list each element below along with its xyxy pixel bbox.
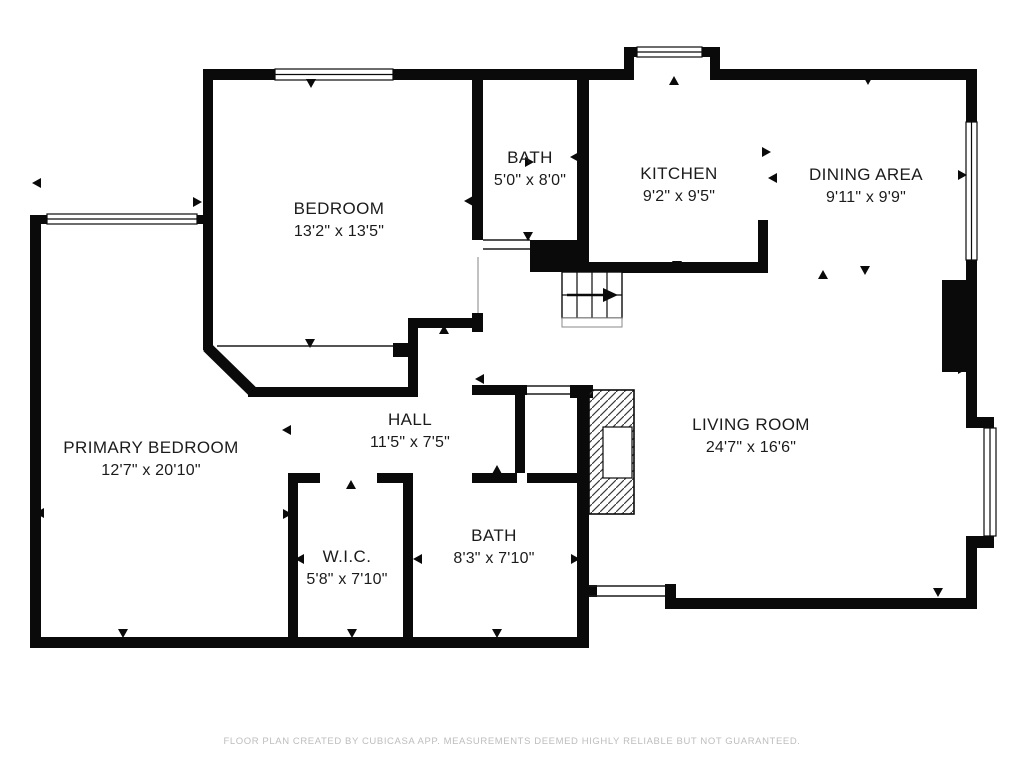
room-dimensions: 5'0" x 8'0" — [494, 172, 566, 189]
room-label-living-room: LIVING ROOM24'7" x 16'6" — [692, 415, 810, 456]
room-dimensions: 5'8" x 7'10" — [306, 571, 387, 588]
door-marker-icon — [306, 79, 316, 88]
door-marker-icon — [818, 270, 828, 279]
room-name: PRIMARY BEDROOM — [63, 438, 238, 457]
door-marker-icon — [346, 480, 356, 489]
room-dimensions: 24'7" x 16'6" — [706, 439, 796, 456]
room-name: LIVING ROOM — [692, 415, 810, 434]
door-marker-icon — [32, 178, 41, 188]
room-name: KITCHEN — [640, 164, 717, 183]
window-primary-top — [47, 214, 197, 224]
door-marker-icon — [492, 465, 502, 474]
room-dimensions: 13'2" x 13'5" — [294, 223, 384, 240]
door-marker-icon — [464, 196, 473, 206]
door-marker-icon — [347, 629, 357, 638]
room-dimensions: 11'5" x 7'5" — [370, 434, 450, 451]
stairwell-hatch — [589, 390, 634, 514]
door-marker-icon — [933, 588, 943, 597]
room-name: HALL — [388, 410, 432, 429]
door-marker-icon — [863, 76, 873, 85]
door-marker-icon — [570, 152, 579, 162]
window-living-bay — [984, 428, 996, 536]
window-dining-right — [966, 122, 977, 260]
door-marker-icon — [282, 425, 291, 435]
room-dimensions: 9'11" x 9'9" — [826, 189, 906, 206]
room-name: BEDROOM — [294, 199, 385, 218]
room-label-primary-bedroom: PRIMARY BEDROOM12'7" x 20'10" — [63, 438, 238, 479]
door-marker-icon — [475, 374, 484, 384]
room-dimensions: 9'2" x 9'5" — [643, 188, 715, 205]
room-label-bath-upper: BATH5'0" x 8'0" — [494, 148, 566, 189]
staircase — [562, 272, 622, 327]
room-label-wic: W.I.C.5'8" x 7'10" — [306, 547, 387, 588]
door-marker-icon — [860, 266, 870, 275]
room-label-dining-area: DINING AREA9'11" x 9'9" — [809, 165, 923, 206]
door-marker-icon — [118, 629, 128, 638]
window-kitchen-bump — [637, 47, 702, 57]
footer-credit: FLOOR PLAN CREATED BY CUBICASA APP. MEAS… — [0, 736, 1024, 747]
room-label-bedroom: BEDROOM13'2" x 13'5" — [294, 199, 385, 240]
door-marker-icon — [762, 147, 771, 157]
door-marker-icon — [669, 76, 679, 85]
room-dimensions: 12'7" x 20'10" — [101, 462, 200, 479]
room-label-hall: HALL11'5" x 7'5" — [370, 410, 450, 451]
door-marker-icon — [768, 173, 777, 183]
floor-plan-page: BEDROOM13'2" x 13'5"BATH5'0" x 8'0"KITCH… — [0, 0, 1024, 768]
floor-plan: BEDROOM13'2" x 13'5"BATH5'0" x 8'0"KITCH… — [0, 0, 1024, 768]
room-name: BATH — [507, 148, 553, 167]
room-name: BATH — [471, 526, 517, 545]
room-name: W.I.C. — [323, 547, 372, 566]
door-marker-icon — [413, 554, 422, 564]
door-marker-icon — [193, 197, 202, 207]
room-label-bath-lower: BATH8'3" x 7'10" — [453, 526, 534, 567]
room-dimensions: 8'3" x 7'10" — [453, 550, 534, 567]
window-bedroom-top — [275, 69, 393, 80]
room-name: DINING AREA — [809, 165, 923, 184]
door-marker-icon — [492, 629, 502, 638]
room-label-kitchen: KITCHEN9'2" x 9'5" — [640, 164, 717, 205]
